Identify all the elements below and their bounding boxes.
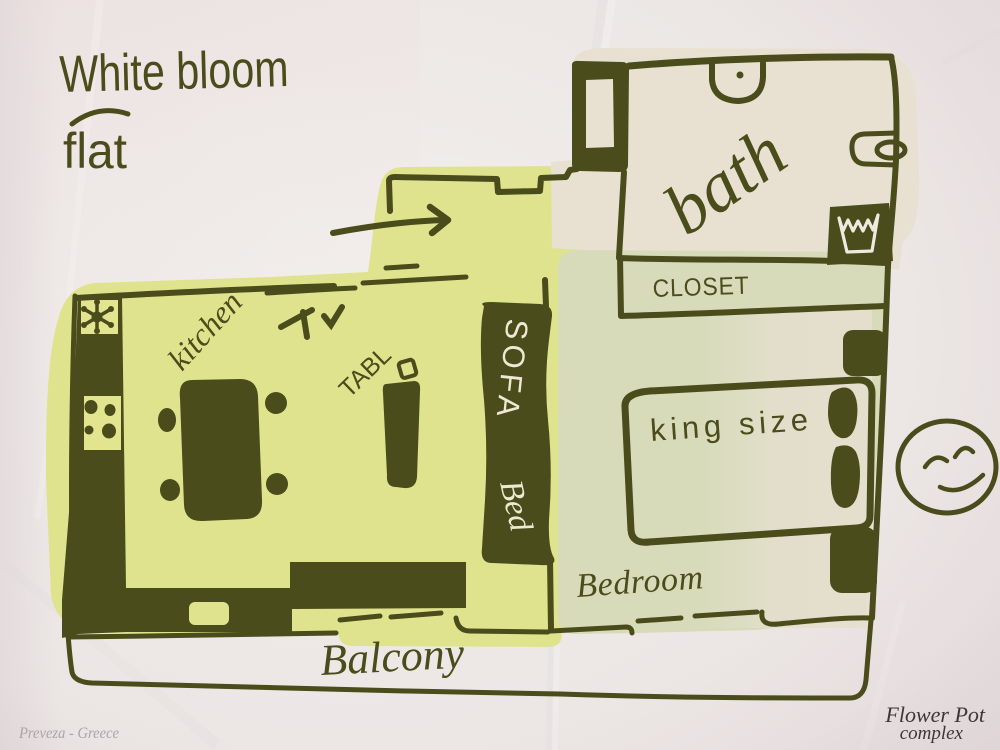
svg-text:Preveza - Greece: Preveza - Greece [18, 725, 119, 742]
svg-text:CLOSET: CLOSET [652, 272, 750, 303]
svg-text:Balcony: Balcony [319, 628, 466, 684]
svg-text:complex: complex [900, 723, 964, 744]
svg-text:flat: flat [63, 123, 127, 179]
svg-text:White bloom: White bloom [59, 40, 289, 104]
